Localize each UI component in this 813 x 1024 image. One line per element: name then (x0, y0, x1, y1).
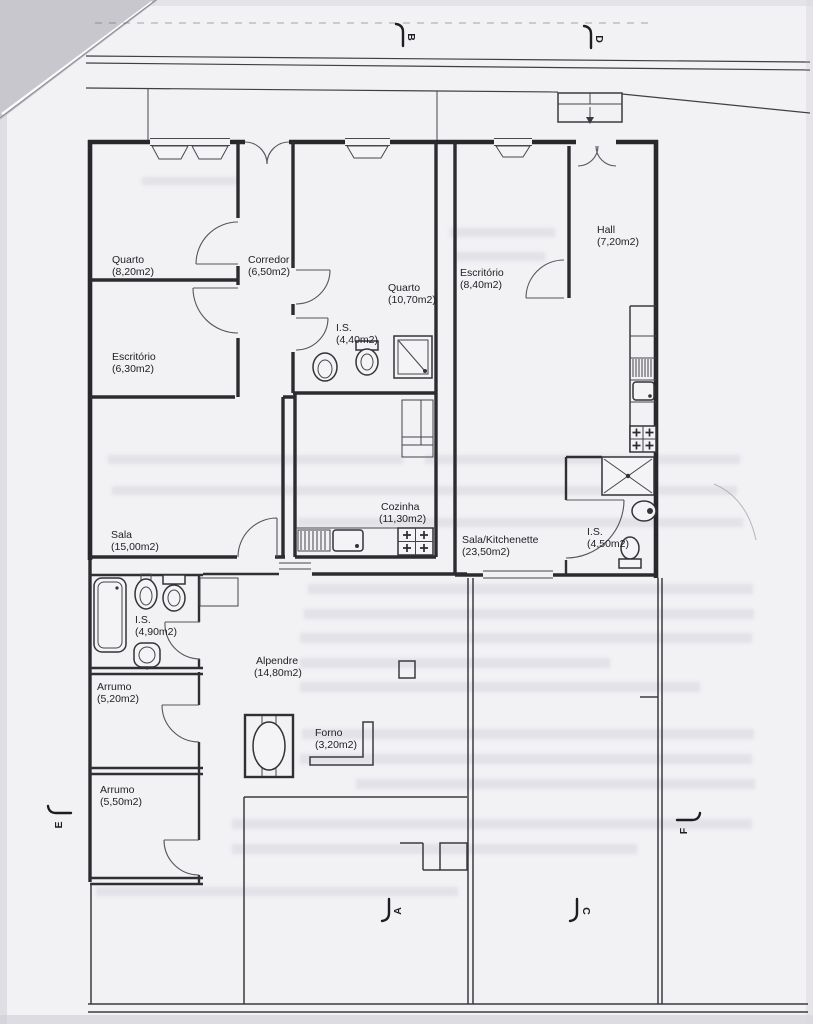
svg-text:(5,50m2): (5,50m2) (100, 796, 142, 808)
svg-text:(8,20m2): (8,20m2) (112, 266, 154, 278)
section-marker-f: F (678, 827, 690, 834)
svg-text:(5,20m2): (5,20m2) (97, 693, 139, 705)
section-cut-icon (570, 899, 577, 921)
section-cut-icon (48, 806, 71, 813)
room-label-alpendre: Alpendre (256, 655, 298, 667)
scanned-sheet: Quarto (8,20m2) Escritório (6,30m2) Corr… (0, 0, 813, 1024)
section-cut-icon (677, 813, 700, 820)
room-label-is-1: I.S. (336, 322, 352, 334)
svg-text:(4,90m2): (4,90m2) (135, 626, 177, 638)
section-cut-icon (382, 899, 389, 921)
section-marker-a: A (392, 907, 404, 915)
section-marker-c: C (580, 907, 592, 915)
room-label-sala: Sala (111, 529, 132, 541)
svg-text:(3,20m2): (3,20m2) (315, 739, 357, 751)
floor-plan: Quarto (8,20m2) Escritório (6,30m2) Corr… (0, 0, 813, 1024)
oven-chamber (253, 722, 285, 770)
svg-text:(6,30m2): (6,30m2) (112, 363, 154, 375)
main-inner-walls (90, 142, 656, 882)
svg-text:(14,80m2): (14,80m2) (254, 667, 302, 679)
room-labels: Quarto (8,20m2) Escritório (6,30m2) Corr… (97, 224, 639, 808)
section-cut-icon (396, 24, 403, 46)
porch-and-oven (200, 578, 415, 777)
room-label-escritorio-1: Escritório (112, 351, 156, 363)
toilet (163, 585, 185, 611)
room-label-escritorio-2: Escritório (460, 267, 504, 279)
room-label-kitchenette: Sala/Kitchenette (462, 534, 539, 546)
svg-text:(4,40m2): (4,40m2) (336, 334, 378, 346)
room-label-cozinha: Cozinha (381, 501, 420, 513)
window-sill (192, 146, 228, 159)
section-cut-icon (584, 26, 591, 48)
kitchen-cabinet (402, 400, 433, 457)
step-landing (200, 578, 238, 606)
svg-text:(11,30m2): (11,30m2) (379, 513, 426, 525)
bathroom-2-fixtures (602, 457, 656, 568)
entrance-steps (558, 93, 622, 124)
steps-down-arrow-icon (586, 117, 594, 124)
svg-text:(8,40m2): (8,40m2) (460, 279, 502, 291)
drainer (633, 359, 651, 377)
courtyard-walls (88, 578, 808, 1012)
window-sill (152, 146, 188, 159)
room-label-hall: Hall (597, 224, 615, 236)
bidet (313, 353, 337, 381)
bathtub (94, 578, 126, 652)
street-boundary-lines (86, 23, 810, 142)
svg-text:(4,50m2): (4,50m2) (587, 538, 629, 550)
kitchen-counter (296, 400, 436, 555)
section-marker-b: B (405, 33, 417, 41)
window-sill (347, 146, 388, 158)
page-fold-corner (0, 0, 158, 120)
room-label-quarto-2: Quarto (388, 282, 420, 294)
toilet-tank (619, 559, 641, 568)
toilet (356, 349, 378, 375)
kitchen-sink (333, 530, 363, 551)
window-sill (496, 146, 530, 157)
room-label-corredor: Corredor (248, 254, 290, 266)
room-label-arrumo-2: Arrumo (100, 784, 135, 796)
section-marker-e: E (53, 821, 65, 828)
kitchenette-appliances (630, 306, 656, 452)
svg-text:(7,20m2): (7,20m2) (597, 236, 639, 248)
svg-text:(10,70m2): (10,70m2) (388, 294, 436, 306)
room-label-quarto-1: Quarto (112, 254, 144, 266)
section-marker-d: D (593, 35, 605, 43)
room-label-forno: Forno (315, 727, 343, 739)
svg-text:(23,50m2): (23,50m2) (462, 546, 510, 558)
room-label-is-2: I.S. (587, 526, 603, 538)
windows (150, 139, 553, 579)
room-label-arrumo-1: Arrumo (97, 681, 132, 693)
room-label-is-3: I.S. (135, 614, 151, 626)
svg-text:(15,00m2): (15,00m2) (111, 541, 159, 553)
toilet-tank (163, 575, 185, 584)
svg-text:(6,50m2): (6,50m2) (248, 266, 290, 278)
